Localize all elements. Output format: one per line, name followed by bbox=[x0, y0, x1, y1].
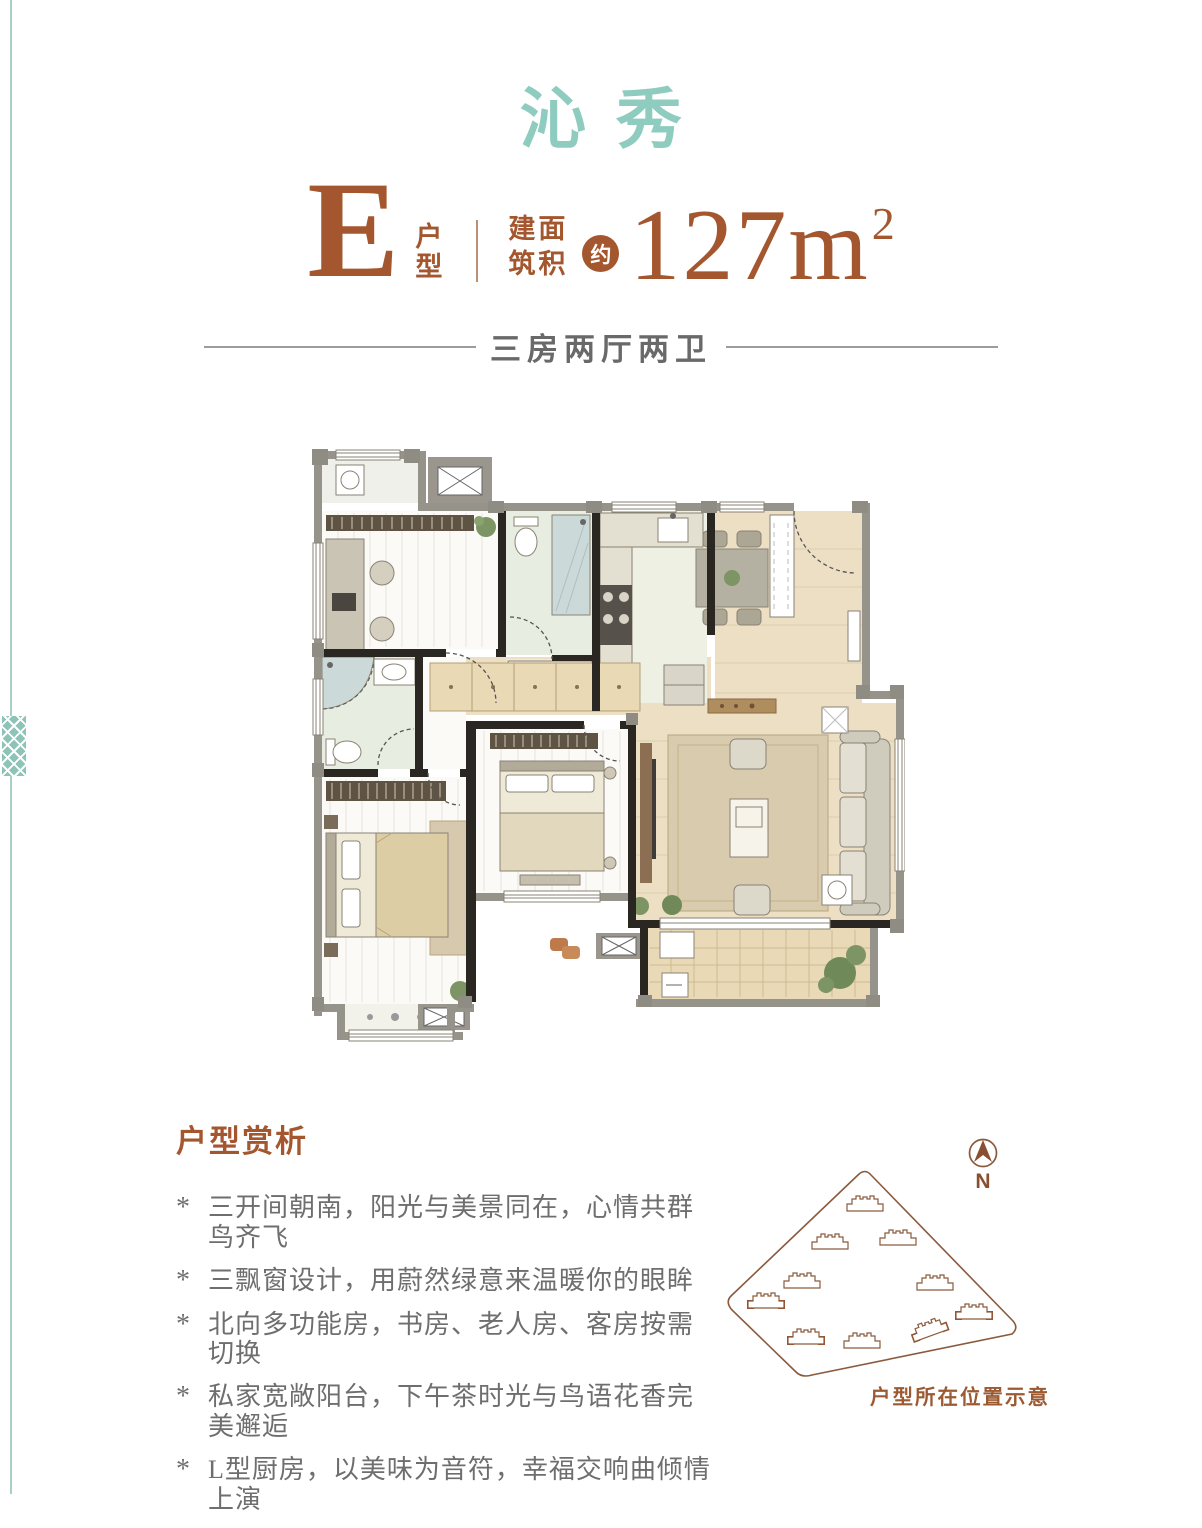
building-highlighted-icon bbox=[787, 1329, 825, 1345]
bullet-marker: * bbox=[176, 1266, 208, 1297]
analysis-section: 户型赏析 *三开间朝南，阳光与美景同在，心情共群鸟齐飞*三飘窗设计，用蔚然绿意来… bbox=[176, 1116, 716, 1528]
bedside-lamp-icon bbox=[604, 767, 616, 779]
bullet-marker: * bbox=[176, 1310, 208, 1341]
bullet-text: 三飘窗设计，用蔚然绿意来温暖你的眼眸 bbox=[208, 1266, 694, 1296]
area-unit-sup: 2 bbox=[872, 198, 897, 249]
window bbox=[313, 679, 323, 735]
toilet-icon bbox=[333, 741, 361, 763]
bullet-marker: * bbox=[176, 1455, 208, 1486]
wardrobe-icon bbox=[490, 733, 598, 749]
chair-icon bbox=[370, 561, 394, 585]
header-divider bbox=[476, 220, 478, 282]
dining-chair-icon bbox=[737, 609, 761, 625]
compass-label: N bbox=[975, 1170, 990, 1193]
subtitle-right-line bbox=[726, 346, 998, 348]
building-highlighted-icon bbox=[955, 1304, 993, 1320]
ac-unit-icon bbox=[602, 937, 636, 955]
bullet-text: L型厨房，以美味为音符，幸福交响曲倾情上演 bbox=[208, 1455, 716, 1515]
area-number: 127 bbox=[629, 189, 788, 302]
compass-icon: N bbox=[970, 1140, 997, 1194]
floor-plan-svg bbox=[300, 443, 905, 1043]
pillow-icon bbox=[562, 946, 580, 959]
analysis-heading: 户型赏析 bbox=[176, 1116, 716, 1161]
double-bed-icon bbox=[326, 833, 448, 937]
plant-icon bbox=[662, 895, 682, 915]
site-plan-svg: N 户型所在位置示意 bbox=[702, 1122, 1050, 1422]
window bbox=[720, 502, 764, 512]
sliding-door bbox=[660, 918, 830, 929]
analysis-bullet: *三开间朝南，阳光与美景同在，心情共群鸟齐飞 bbox=[176, 1193, 716, 1253]
floor-plan bbox=[300, 443, 905, 1043]
bedside-lamp-icon bbox=[604, 857, 616, 869]
ac-unit-icon bbox=[438, 467, 482, 495]
window bbox=[313, 543, 323, 639]
approx-badge: 约 bbox=[582, 235, 619, 272]
armchair-icon bbox=[730, 739, 766, 769]
area-label-line1: 建面 bbox=[508, 212, 568, 247]
bench-icon bbox=[520, 875, 580, 885]
nightstand-icon bbox=[324, 943, 338, 957]
kitchen-sink-icon bbox=[658, 518, 688, 542]
analysis-bullets: *三开间朝南，阳光与美景同在，心情共群鸟齐飞*三飘窗设计，用蔚然绿意来温暖你的眼… bbox=[176, 1193, 716, 1515]
chair-icon bbox=[370, 617, 394, 641]
unit-letter: E bbox=[307, 173, 399, 286]
nightstand-icon bbox=[324, 815, 338, 829]
double-bed-icon bbox=[500, 761, 604, 871]
bay-window bbox=[504, 891, 600, 902]
unit-header: E 户 型 建面 筑积 约 127m2 bbox=[0, 168, 1202, 286]
window bbox=[895, 739, 905, 871]
bullet-text: 三开间朝南，阳光与美景同在，心情共群鸟齐飞 bbox=[208, 1193, 716, 1253]
brochure-page: { "page": { "title": "沁秀" }, "colors": {… bbox=[0, 0, 1202, 1494]
bullet-marker: * bbox=[176, 1193, 208, 1224]
window bbox=[612, 502, 676, 512]
unit-type-label-bottom: 型 bbox=[415, 252, 442, 282]
subtitle-left-line bbox=[204, 346, 476, 348]
unit-type-label: 户 型 bbox=[415, 222, 442, 282]
area-unit: m bbox=[788, 189, 869, 302]
analysis-bullet: *北向多功能房，书房、老人房、客房按需切换 bbox=[176, 1310, 716, 1370]
bullet-text: 北向多功能房，书房、老人房、客房按需切换 bbox=[208, 1310, 716, 1370]
sideboard-icon bbox=[708, 699, 776, 713]
site-plan: N 户型所在位置示意 bbox=[702, 1122, 1050, 1422]
analysis-bullet: *三飘窗设计，用蔚然绿意来温暖你的眼眸 bbox=[176, 1266, 716, 1297]
living-room bbox=[631, 707, 890, 915]
analysis-bullet: *私家宽敞阳台，下午茶时光与鸟语花香完美邂逅 bbox=[176, 1382, 716, 1442]
shoe-cabinet bbox=[848, 611, 860, 661]
unit-type-label-top: 户 bbox=[415, 222, 442, 252]
layout-subtitle: 三房两厅两卫 bbox=[0, 324, 1202, 369]
toilet-icon bbox=[515, 528, 537, 556]
subtitle-text: 三房两厅两卫 bbox=[490, 324, 712, 369]
plant-icon bbox=[724, 570, 740, 586]
left-edge-lattice-ornament bbox=[2, 716, 26, 776]
balcony-cabinet bbox=[660, 932, 694, 958]
analysis-bullet: *L型厨房，以美味为音符，幸福交响曲倾情上演 bbox=[176, 1455, 716, 1515]
window bbox=[336, 450, 400, 460]
building-highlighted-icon bbox=[747, 1293, 785, 1309]
bullet-marker: * bbox=[176, 1382, 208, 1413]
tv-icon bbox=[652, 759, 656, 859]
area-value: 127m2 bbox=[629, 206, 894, 286]
tv-cabinet-icon bbox=[640, 743, 652, 883]
dining-chair-icon bbox=[737, 531, 761, 547]
page-title: 沁秀 bbox=[0, 66, 1202, 162]
corridor-cabinet bbox=[430, 663, 640, 711]
site-caption: 户型所在位置示意 bbox=[870, 1385, 1050, 1409]
washbasin-icon bbox=[382, 664, 406, 680]
area-label: 建面 筑积 bbox=[508, 212, 568, 282]
tall-cabinet bbox=[770, 515, 794, 617]
side-table-icon bbox=[822, 875, 852, 905]
area-label-line2: 筑积 bbox=[508, 247, 568, 282]
bullet-text: 私家宽敞阳台，下午茶时光与鸟语花香完美邂逅 bbox=[208, 1382, 716, 1442]
bay-window bbox=[349, 1030, 453, 1041]
armchair-icon bbox=[734, 885, 770, 915]
side-table-icon bbox=[822, 707, 848, 733]
